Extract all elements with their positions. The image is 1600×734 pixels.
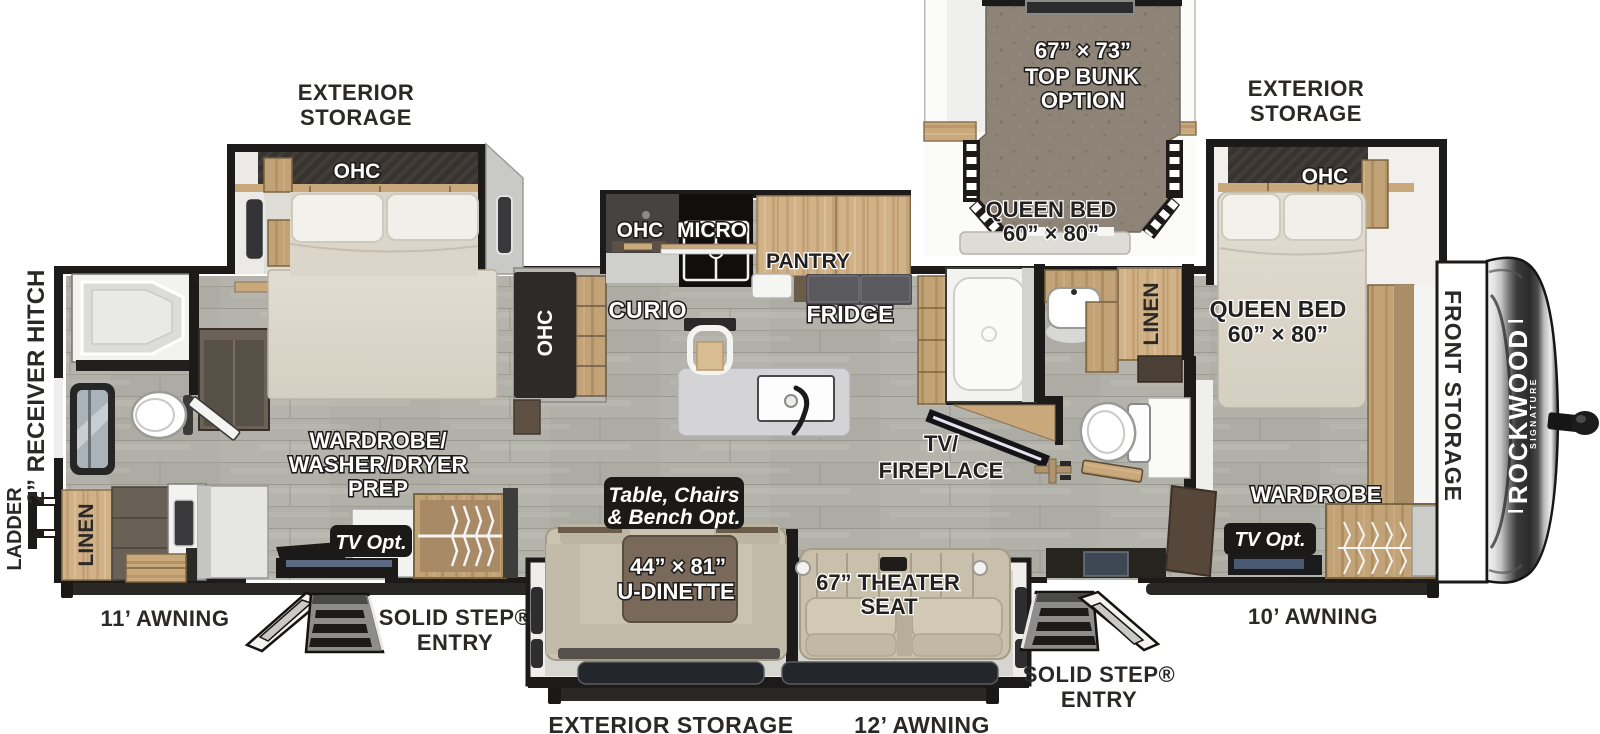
svg-text:67” × 73”: 67” × 73”: [1035, 38, 1131, 63]
svg-text:TV Opt.: TV Opt.: [335, 532, 406, 554]
svg-text:& Bench Opt.: & Bench Opt.: [607, 506, 740, 529]
svg-text:Table, Chairs: Table, Chairs: [608, 484, 739, 507]
svg-text:TV Opt.: TV Opt.: [1234, 529, 1305, 551]
svg-text:OHC: OHC: [1302, 165, 1349, 188]
svg-text:10’ AWNING: 10’ AWNING: [1248, 604, 1378, 629]
svg-text:EXTERIOR: EXTERIOR: [298, 80, 414, 105]
svg-text:EXTERIOR: EXTERIOR: [1248, 76, 1364, 101]
svg-text:U-DINETTE: U-DINETTE: [617, 579, 734, 604]
svg-text:LINEN: LINEN: [75, 504, 98, 567]
svg-text:MICRO: MICRO: [677, 219, 747, 242]
svg-text:OPTION: OPTION: [1041, 88, 1125, 113]
svg-text:67” THEATER: 67” THEATER: [816, 570, 960, 595]
svg-text:ENTRY: ENTRY: [417, 630, 493, 655]
svg-text:SOLID STEP®: SOLID STEP®: [1023, 662, 1176, 687]
svg-text:11’ AWNING: 11’ AWNING: [101, 606, 230, 631]
svg-text:QUEEN BED: QUEEN BED: [1210, 296, 1347, 322]
svg-text:ENTRY: ENTRY: [1061, 687, 1137, 712]
svg-text:TOP BUNK: TOP BUNK: [1025, 64, 1139, 89]
svg-text:44” × 81”: 44” × 81”: [630, 554, 726, 579]
svg-text:STORAGE: STORAGE: [300, 105, 412, 130]
svg-text:60” × 80”: 60” × 80”: [1228, 321, 1328, 347]
svg-text:2” RECEIVER HITCH: 2” RECEIVER HITCH: [23, 270, 50, 505]
svg-text:FRIDGE: FRIDGE: [807, 301, 894, 327]
svg-text:FIREPLACE: FIREPLACE: [879, 458, 1004, 483]
svg-text:60” × 80”: 60” × 80”: [1003, 221, 1099, 246]
svg-text:WASHER/DRYER: WASHER/DRYER: [289, 452, 468, 477]
svg-text:PREP: PREP: [348, 476, 408, 501]
svg-text:LINEN: LINEN: [1140, 283, 1163, 346]
svg-text:OHC: OHC: [334, 160, 381, 183]
svg-text:WARDROBE/: WARDROBE/: [310, 428, 447, 453]
svg-text:STORAGE: STORAGE: [1250, 101, 1362, 126]
svg-text:OHC: OHC: [534, 310, 557, 357]
svg-text:PANTRY: PANTRY: [766, 250, 850, 273]
svg-text:QUEEN BED: QUEEN BED: [986, 197, 1117, 222]
svg-text:CURIO: CURIO: [608, 297, 687, 323]
svg-text:SIGNATURE: SIGNATURE: [1528, 377, 1538, 449]
svg-text:12’ AWNING: 12’ AWNING: [854, 712, 990, 734]
svg-text:EXTERIOR STORAGE: EXTERIOR STORAGE: [548, 712, 793, 734]
svg-text:OHC: OHC: [617, 219, 664, 242]
svg-text:FRONT STORAGE: FRONT STORAGE: [1440, 290, 1466, 502]
svg-text:TV/: TV/: [924, 431, 958, 456]
svg-text:SOLID STEP®: SOLID STEP®: [379, 605, 532, 630]
svg-text:SEAT: SEAT: [860, 594, 918, 619]
